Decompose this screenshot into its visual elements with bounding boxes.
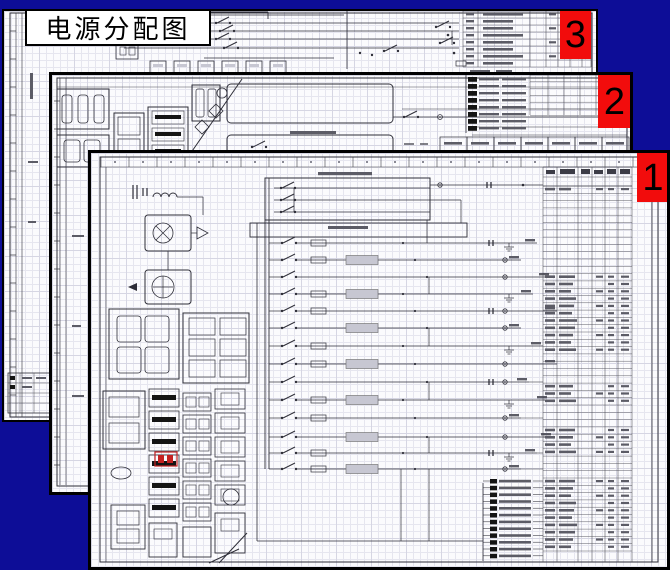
page-badge-2: 2 [598,75,631,128]
page-badge-3: 3 [560,11,591,59]
schematic-sheet-1: 1 [88,150,670,570]
slide-title: 电源分配图 [45,9,190,46]
page-badge-1: 1 [637,153,669,202]
sheet1-drawing [91,153,667,567]
slide-title-box: 电源分配图 [25,9,211,46]
slide-canvas: 3 2 1 电源分配图 [0,0,670,570]
